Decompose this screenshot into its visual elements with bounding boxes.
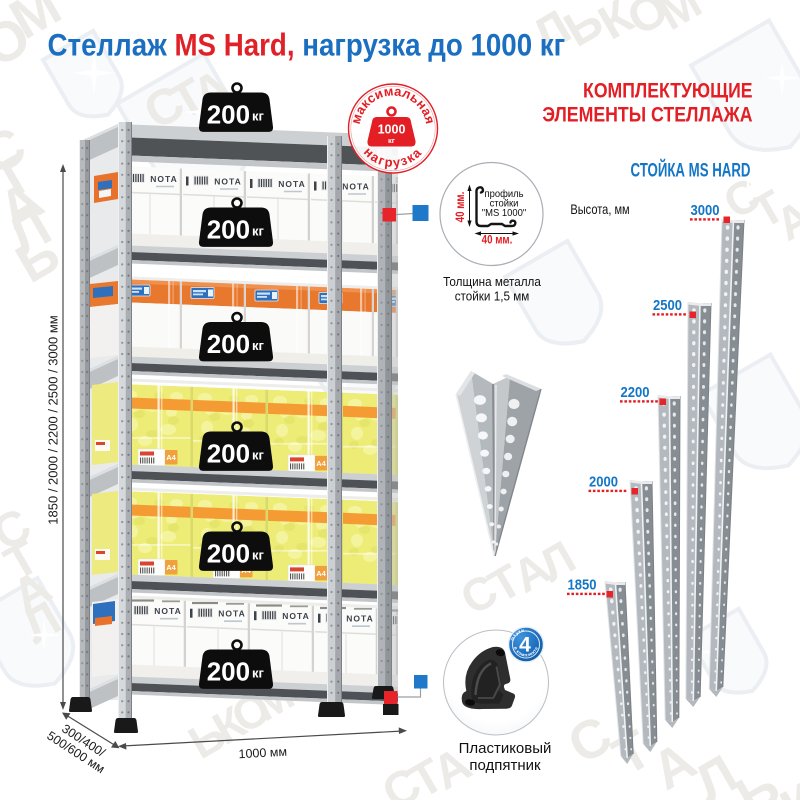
- svg-text:1850: 1850: [567, 577, 596, 593]
- svg-text:"MS 1000": "MS 1000": [482, 208, 527, 220]
- svg-text:1000: 1000: [378, 123, 406, 137]
- svg-text:A4: A4: [316, 569, 326, 578]
- svg-text:NOTA: NOTA: [154, 606, 181, 616]
- svg-text:200: 200: [207, 439, 250, 469]
- svg-text:Толщина металла: Толщина металла: [443, 274, 541, 289]
- svg-text:NOTA: NOTA: [406, 184, 433, 194]
- svg-text:К: К: [771, 770, 800, 800]
- svg-text:кг: кг: [252, 548, 265, 563]
- svg-text:NOTA: NOTA: [346, 614, 373, 624]
- svg-text:A4: A4: [316, 459, 326, 468]
- svg-text:200: 200: [207, 100, 250, 130]
- svg-text:КОМПЛЕКТУЮЩИЕ: КОМПЛЕКТУЮЩИЕ: [583, 79, 752, 103]
- svg-text:Высота, мм: Высота, мм: [570, 202, 629, 217]
- svg-text:3000: 3000: [690, 202, 719, 218]
- svg-text:подпятник: подпятник: [469, 757, 541, 774]
- svg-text:200: 200: [207, 329, 250, 359]
- svg-text:200: 200: [207, 539, 250, 569]
- svg-text:2500: 2500: [653, 297, 682, 313]
- svg-text:NOTA: NOTA: [278, 179, 305, 189]
- svg-text:кг: кг: [252, 666, 265, 681]
- svg-text:кг: кг: [388, 136, 395, 145]
- svg-text:NOTA: NOTA: [342, 182, 369, 192]
- svg-text:1000 мм: 1000 мм: [238, 745, 287, 762]
- svg-text:2200: 2200: [620, 384, 649, 400]
- svg-text:ЭЛЕМЕНТЫ СТЕЛЛАЖА: ЭЛЕМЕНТЫ СТЕЛЛАЖА: [542, 103, 752, 127]
- svg-text:200: 200: [207, 215, 250, 245]
- svg-text:NOTA: NOTA: [214, 177, 241, 187]
- svg-text:кг: кг: [252, 224, 265, 239]
- svg-text:A4: A4: [166, 563, 176, 572]
- svg-text:NOTA: NOTA: [282, 611, 309, 621]
- svg-text:кг: кг: [252, 448, 265, 463]
- svg-text:кг: кг: [252, 338, 265, 353]
- svg-text:1850 / 2000 / 2200 / 2500 / 30: 1850 / 2000 / 2200 / 2500 / 3000 мм: [46, 315, 61, 524]
- svg-text:NOTA: NOTA: [150, 174, 177, 184]
- svg-text:NOTA: NOTA: [218, 609, 245, 619]
- svg-text:2000: 2000: [589, 474, 618, 490]
- svg-text:200: 200: [207, 657, 250, 687]
- svg-text:стойки 1,5 мм: стойки 1,5 мм: [455, 289, 530, 304]
- svg-text:СТОЙКА MS HARD: СТОЙКА MS HARD: [631, 159, 751, 181]
- svg-text:A4: A4: [166, 453, 176, 462]
- svg-text:кг: кг: [252, 109, 265, 124]
- svg-text:Пластиковый: Пластиковый: [459, 740, 552, 757]
- svg-text:40 мм.: 40 мм.: [482, 234, 513, 247]
- svg-text:40 мм.: 40 мм.: [454, 192, 467, 223]
- svg-text:Стеллаж MS Hard, нагрузка до 1: Стеллаж MS Hard, нагрузка до 1000 кг: [48, 28, 566, 63]
- svg-text:NOTA: NOTA: [410, 616, 437, 626]
